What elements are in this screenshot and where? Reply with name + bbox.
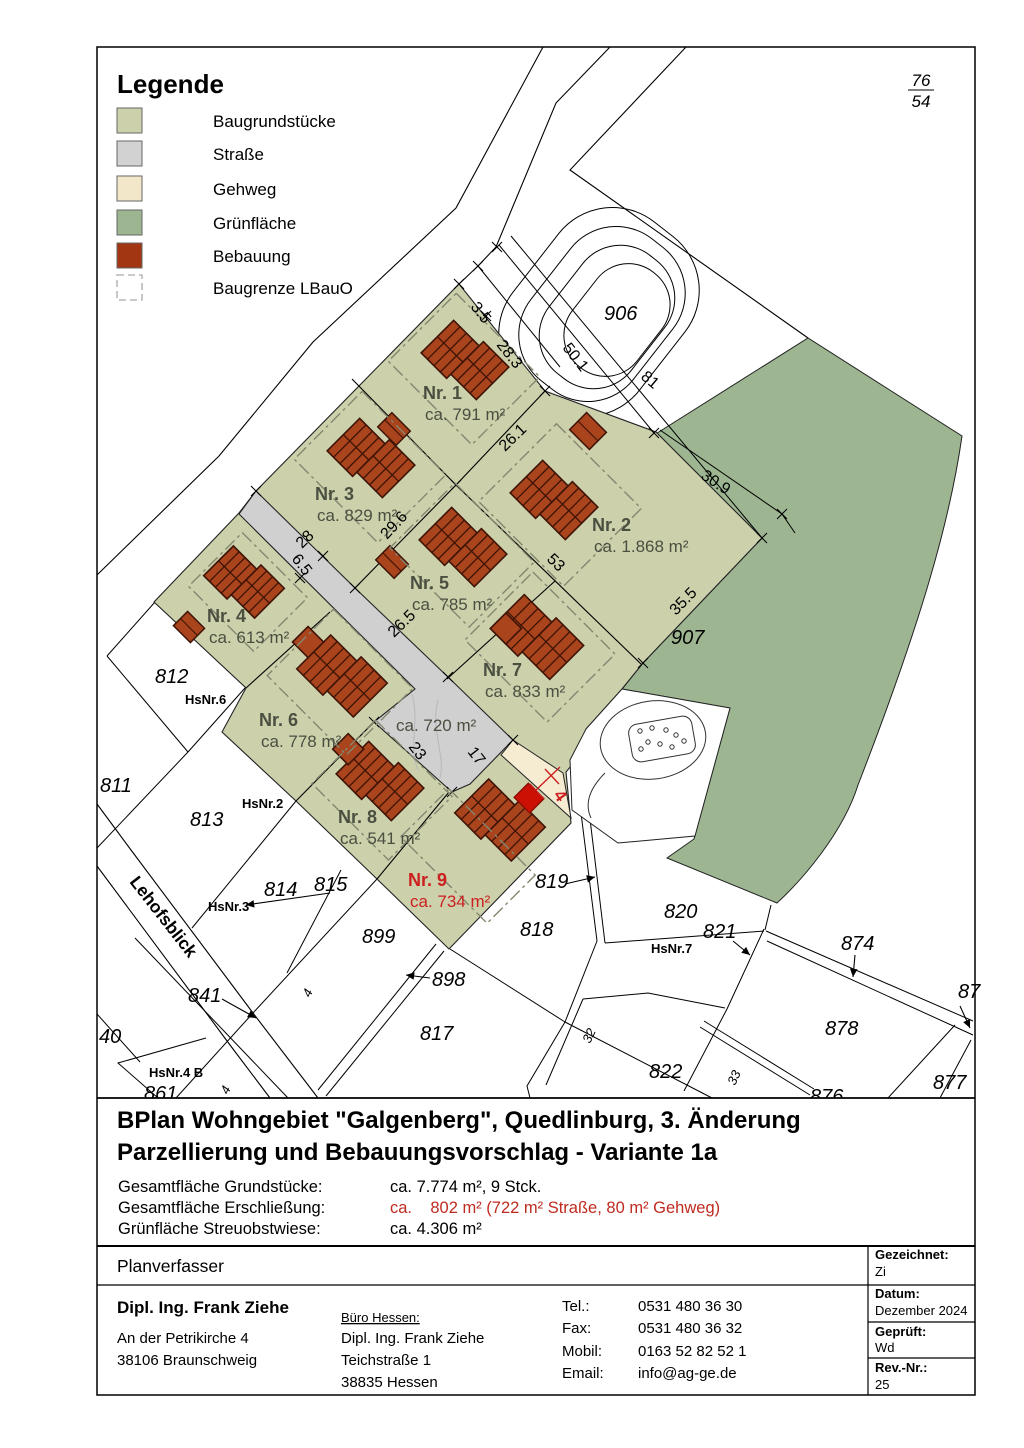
svg-text:822: 822 [649, 1061, 682, 1083]
svg-text:38835 Hessen: 38835 Hessen [341, 1374, 438, 1391]
svg-text:Nr. 3: Nr. 3 [315, 484, 354, 504]
svg-text:813: 813 [190, 809, 223, 831]
svg-text:87: 87 [958, 981, 981, 1003]
svg-text:815: 815 [314, 874, 348, 896]
svg-text:ca. 7.774 m², 9 Stck.: ca. 7.774 m², 9 Stck. [390, 1178, 541, 1196]
svg-text:878: 878 [825, 1018, 858, 1040]
svg-text:820: 820 [664, 901, 697, 923]
svg-text:Nr. 8: Nr. 8 [338, 807, 377, 827]
svg-text:818: 818 [520, 919, 553, 941]
svg-text:ca. 778 m²: ca. 778 m² [261, 732, 342, 751]
svg-text:0531 480 36 30: 0531 480 36 30 [638, 1298, 742, 1315]
svg-text:ca. 541 m²: ca. 541 m² [340, 829, 421, 848]
svg-text:841: 841 [188, 985, 221, 1007]
svg-text:898: 898 [432, 969, 465, 991]
svg-text:874: 874 [841, 933, 874, 955]
svg-text:ca. 833 m²: ca. 833 m² [485, 682, 566, 701]
svg-text:Dezember 2024: Dezember 2024 [875, 1303, 968, 1318]
svg-text:Mobil:: Mobil: [562, 1343, 602, 1360]
svg-text:Email:: Email: [562, 1365, 604, 1382]
svg-text:info@ag-ge.de: info@ag-ge.de [638, 1365, 737, 1382]
svg-text:Nr. 1: Nr. 1 [423, 383, 462, 403]
svg-text:ca. 785 m²: ca. 785 m² [412, 595, 493, 614]
svg-text:ca. 829 m²: ca. 829 m² [317, 506, 398, 525]
svg-text:ca. 4.306 m²: ca. 4.306 m² [390, 1220, 482, 1238]
svg-text:819: 819 [535, 871, 568, 893]
svg-text:Straße: Straße [213, 145, 264, 164]
svg-text:Rev.-Nr.:: Rev.-Nr.: [875, 1360, 928, 1375]
svg-text:ca. 613 m²: ca. 613 m² [209, 628, 290, 647]
svg-text:877: 877 [933, 1072, 967, 1094]
svg-text:ca. 791 m²: ca. 791 m² [425, 405, 506, 424]
svg-text:Geprüft:: Geprüft: [875, 1324, 926, 1339]
svg-text:Gesamtfläche Erschließung:: Gesamtfläche Erschließung: [118, 1199, 325, 1217]
svg-text:Gehweg: Gehweg [213, 180, 276, 199]
svg-text:HsNr.2: HsNr.2 [242, 796, 283, 811]
svg-text:Tel.:: Tel.: [562, 1298, 590, 1315]
svg-text:HsNr.7: HsNr.7 [651, 941, 692, 956]
svg-text:ca. 802 m² (722 m² Straße,: ca. 802 m² (722 m² Straße, 80 m² Gehweg) [390, 1199, 720, 1217]
svg-text:BPlan Wohngebiet "Galgenberg",: BPlan Wohngebiet "Galgenberg", Quedlinbu… [117, 1107, 801, 1134]
svg-text:906: 906 [604, 303, 638, 325]
svg-text:Baugrundstücke: Baugrundstücke [213, 112, 336, 131]
svg-text:Parzellierung und Bebauungsvor: Parzellierung und Bebauungsvorschlag - V… [117, 1139, 718, 1166]
svg-text:Grünfläche: Grünfläche [213, 214, 296, 233]
svg-text:Datum:: Datum: [875, 1286, 920, 1301]
svg-text:817: 817 [420, 1023, 454, 1045]
svg-text:HsNr.4 B: HsNr.4 B [149, 1065, 203, 1080]
svg-text:Baugrenze LBauO: Baugrenze LBauO [213, 279, 353, 298]
svg-text:Nr. 2: Nr. 2 [592, 515, 631, 535]
svg-text:Teichstraße 1: Teichstraße 1 [341, 1352, 431, 1369]
svg-text:54: 54 [912, 92, 931, 111]
svg-text:Nr. 9: Nr. 9 [408, 870, 447, 890]
svg-text:HsNr.6: HsNr.6 [185, 692, 226, 707]
svg-text:Nr. 4: Nr. 4 [207, 606, 246, 626]
svg-text:Nr. 7: Nr. 7 [483, 660, 522, 680]
svg-text:Grünfläche Streuobstwiese:: Grünfläche Streuobstwiese: [118, 1220, 321, 1238]
svg-text:Fax:: Fax: [562, 1320, 591, 1337]
svg-text:907: 907 [671, 627, 705, 649]
svg-text:An der Petrikirche 4: An der Petrikirche 4 [117, 1330, 249, 1347]
svg-text:ca. 734 m²: ca. 734 m² [410, 892, 491, 911]
svg-text:25: 25 [875, 1377, 889, 1392]
svg-text:Zi: Zi [875, 1264, 886, 1279]
svg-text:ca. 720 m²: ca. 720 m² [396, 716, 477, 735]
svg-text:Nr. 5: Nr. 5 [410, 573, 449, 593]
svg-text:Gezeichnet:: Gezeichnet: [875, 1247, 949, 1262]
svg-text:76: 76 [912, 71, 931, 90]
svg-text:Gesamtfläche Grundstücke:: Gesamtfläche Grundstücke: [118, 1178, 323, 1196]
svg-text:Büro Hessen:: Büro Hessen: [341, 1310, 420, 1325]
svg-text:821: 821 [703, 921, 736, 943]
svg-text:Planverfasser: Planverfasser [117, 1256, 224, 1276]
svg-text:Wd: Wd [875, 1340, 895, 1355]
svg-text:HsNr.3: HsNr.3 [208, 899, 249, 914]
svg-text:0531 480 36 32: 0531 480 36 32 [638, 1320, 742, 1337]
svg-text:812: 812 [155, 666, 188, 688]
svg-text:814: 814 [264, 879, 297, 901]
svg-text:0163 52 82 52 1: 0163 52 82 52 1 [638, 1343, 746, 1360]
svg-text:Nr. 6: Nr. 6 [259, 710, 298, 730]
svg-text:ca. 1.868 m²: ca. 1.868 m² [594, 537, 689, 556]
svg-text:Dipl. Ing. Frank Ziehe: Dipl. Ing. Frank Ziehe [341, 1330, 484, 1347]
svg-text:899: 899 [362, 926, 395, 948]
svg-text:Bebauung: Bebauung [213, 247, 291, 266]
svg-text:Legende: Legende [117, 69, 224, 99]
svg-text:811: 811 [100, 775, 132, 797]
svg-text:38106 Braunschweig: 38106 Braunschweig [117, 1352, 257, 1369]
svg-text:Dipl. Ing. Frank Ziehe: Dipl. Ing. Frank Ziehe [117, 1298, 289, 1317]
svg-text:40: 40 [99, 1026, 121, 1048]
